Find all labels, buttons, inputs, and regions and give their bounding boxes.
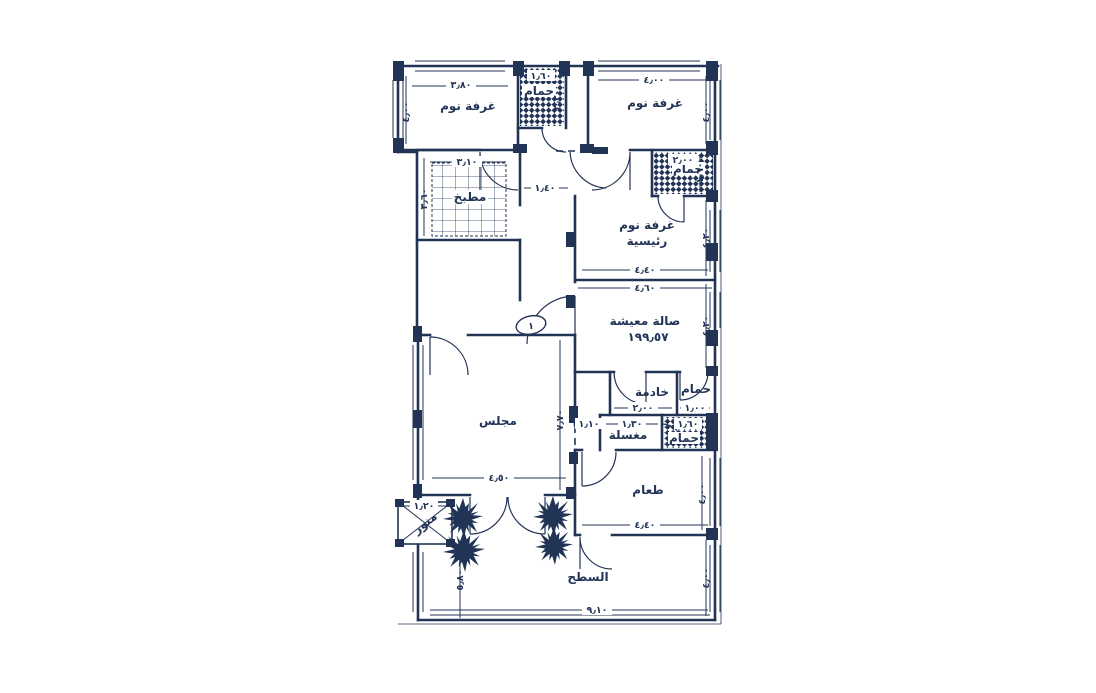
room-label-bath-small: حمام bbox=[669, 431, 699, 446]
finish-hatches bbox=[432, 68, 713, 448]
dim-majlis-opening: ١٫١٠ bbox=[579, 419, 600, 430]
dim-bedroom1-height: ٤٫٠٠ bbox=[401, 102, 412, 123]
room-label-bedroom1: غرفة نوم bbox=[440, 99, 496, 114]
dim-kitchen-height: ٣٫٦٠ bbox=[419, 189, 430, 210]
dim-bedroom2-height: ٤٫٠٠ bbox=[701, 102, 712, 123]
dim-bedroom1-width: ٣٫٨٠ bbox=[451, 80, 472, 91]
dim-hall-width: ١٫٤٠ bbox=[535, 183, 556, 194]
dim-maid-width: ٢٫٠٠ bbox=[633, 403, 654, 414]
dim-lightwell-width: ١٫٢٠ bbox=[414, 501, 435, 512]
room-label-bedroom2: غرفة نوم bbox=[627, 96, 683, 111]
room-label-roof: السطح bbox=[567, 570, 608, 584]
dim-roof-height-left: ٥٫٨٠ bbox=[455, 570, 466, 591]
dim-master-width: ٤٫٤٠ bbox=[635, 265, 656, 276]
dim-bath-master-height: ١٫٦٠ bbox=[695, 163, 706, 184]
dim-laundry-width: ١٫٣٠ bbox=[622, 419, 643, 430]
room-label-bath-maid: حمام bbox=[681, 382, 711, 397]
room-label-bath-top: حمام bbox=[524, 84, 554, 99]
dim-roof-width: ٩٫١٠ bbox=[587, 605, 608, 616]
room-label-maid: خادمة bbox=[635, 385, 669, 399]
dim-bedroom2-width: ٤٫٠٠ bbox=[644, 75, 665, 86]
room-label-majlis: مجلس bbox=[479, 414, 517, 428]
dim-living-height: ٤٫٢٠ bbox=[701, 316, 712, 337]
dim-bath-master-width: ٢٫٠٠ bbox=[673, 155, 694, 166]
room-label-laundry: مغسلة bbox=[609, 428, 648, 442]
dim-dining-width: ٤٫٤٠ bbox=[635, 520, 656, 531]
floor-plan-page: غرفة نوم حمام غرفة نوم مطبخ حمام غرفة نو… bbox=[0, 0, 1096, 693]
entry-mark-number: ١ bbox=[528, 321, 534, 332]
room-label-living: صالة معيشة bbox=[610, 314, 681, 328]
room-label-kitchen: مطبخ bbox=[454, 190, 487, 204]
dim-bath-maid-width: ١٫٠٠ bbox=[685, 403, 706, 414]
dim-majlis-height: ٧٫٧٠ bbox=[555, 410, 566, 431]
room-label-master-1: غرفة نوم bbox=[619, 218, 675, 233]
dim-bath-small-width: ١٫٦٠ bbox=[678, 419, 699, 430]
dim-bath-top-height: ٢٫٢٠ bbox=[552, 90, 563, 111]
dim-kitchen-width: ٣٫١٠ bbox=[457, 157, 478, 168]
dim-majlis-width: ٤٫٥٠ bbox=[489, 473, 510, 484]
door-master bbox=[570, 152, 606, 188]
room-label-master-2: رئيسية bbox=[627, 234, 668, 248]
living-area-value: ١٩٩٫٥٧ bbox=[627, 330, 669, 344]
dim-bath-top-width: ١٫٦٠ bbox=[531, 71, 552, 82]
palm-tree-icon bbox=[532, 495, 574, 566]
door-dining bbox=[582, 452, 616, 486]
door-roof bbox=[580, 537, 612, 569]
dim-living-width: ٤٫٦٠ bbox=[635, 283, 656, 294]
door-bath-top bbox=[542, 128, 566, 152]
room-label-dining: طعام bbox=[632, 483, 663, 498]
dim-dining-height: ٤٫٠٠ bbox=[697, 484, 708, 505]
door-majlis-top bbox=[430, 337, 468, 375]
door-bedroom2 bbox=[592, 152, 630, 190]
dim-roof-height-right: ٤٫٠٠ bbox=[701, 568, 712, 589]
floor-plan-canvas: غرفة نوم حمام غرفة نوم مطبخ حمام غرفة نو… bbox=[0, 0, 1096, 693]
dim-master-height: ٤٫٢٠ bbox=[701, 228, 712, 249]
entry-door-mark: ١ bbox=[514, 313, 547, 337]
